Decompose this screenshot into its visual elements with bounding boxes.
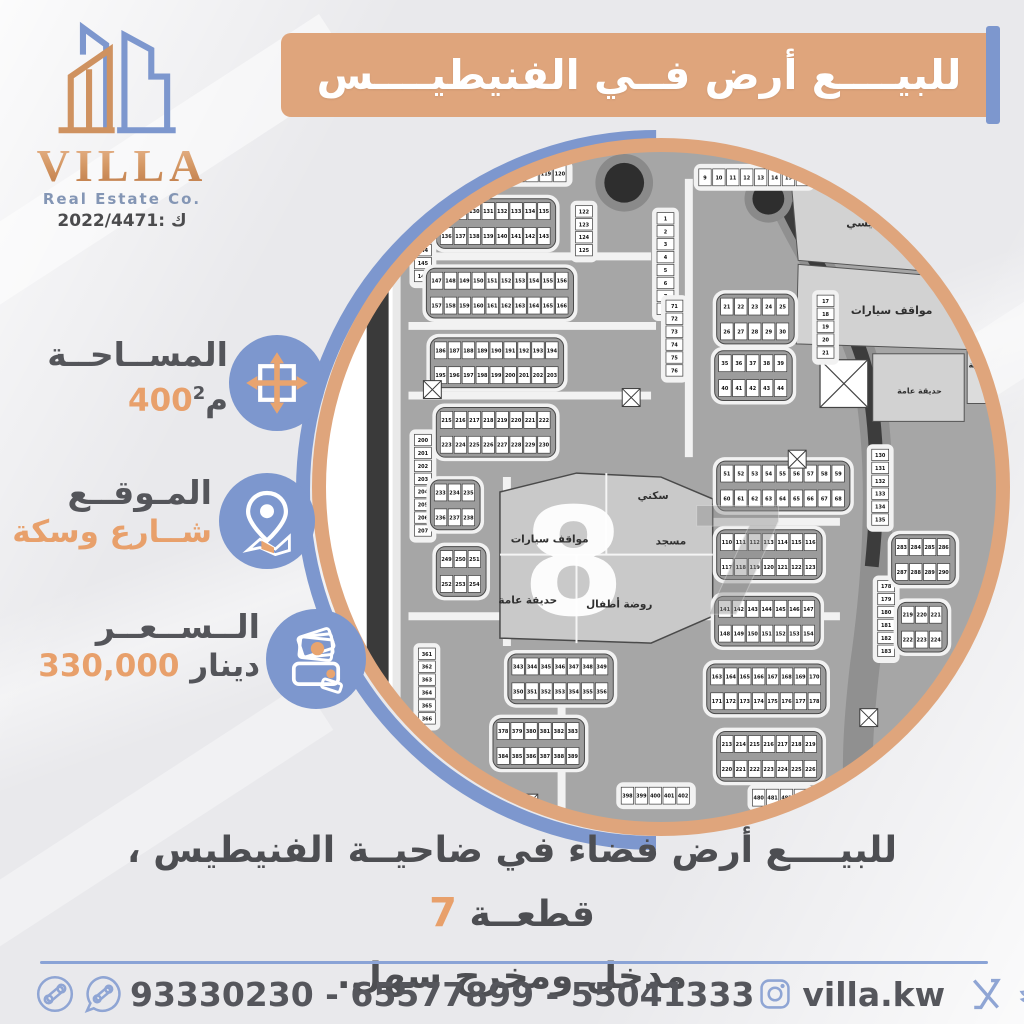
- svg-text:18: 18: [822, 312, 829, 318]
- svg-text:385: 385: [512, 754, 523, 760]
- svg-text:161: 161: [487, 304, 498, 310]
- svg-text:7: 7: [687, 477, 791, 650]
- svg-text:380: 380: [526, 729, 537, 735]
- svg-text:154: 154: [529, 279, 540, 285]
- svg-text:381: 381: [540, 729, 551, 735]
- svg-text:11: 11: [729, 175, 736, 181]
- svg-text:167: 167: [767, 674, 778, 680]
- svg-text:388: 388: [554, 754, 565, 760]
- svg-text:1: 1: [664, 216, 668, 222]
- svg-text:3: 3: [664, 242, 668, 248]
- subdivision-map: مسجد رئيسيمواقف سياراتحديقة عامةالابتدائ…: [323, 149, 999, 825]
- svg-text:481: 481: [767, 796, 778, 802]
- svg-text:57: 57: [807, 472, 814, 478]
- svg-text:224: 224: [777, 767, 788, 773]
- svg-text:200: 200: [418, 438, 429, 444]
- svg-text:354: 354: [569, 689, 580, 695]
- svg-text:285: 285: [924, 545, 935, 551]
- svg-text:402: 402: [678, 794, 689, 800]
- svg-text:229: 229: [525, 443, 536, 449]
- svg-text:120: 120: [555, 171, 566, 177]
- area-value: 400م2: [0, 374, 228, 420]
- svg-text:59: 59: [835, 472, 842, 478]
- price-value: 330,000 دينار: [30, 646, 260, 686]
- svg-text:124: 124: [579, 235, 590, 241]
- svg-text:42: 42: [749, 386, 756, 392]
- svg-text:71: 71: [671, 304, 678, 310]
- svg-text:56: 56: [793, 472, 800, 478]
- svg-text:149: 149: [459, 279, 470, 285]
- svg-text:201: 201: [519, 373, 530, 379]
- svg-text:145: 145: [418, 261, 429, 267]
- svg-text:220: 220: [917, 613, 928, 619]
- svg-text:195: 195: [435, 373, 446, 379]
- svg-text:218: 218: [791, 742, 802, 748]
- svg-text:223: 223: [763, 767, 774, 773]
- svg-text:173: 173: [740, 699, 751, 705]
- svg-text:19: 19: [822, 325, 829, 331]
- svg-text:75: 75: [671, 356, 678, 362]
- price-label: الــســعــر: [30, 608, 260, 646]
- svg-text:171: 171: [712, 699, 723, 705]
- svg-text:65: 65: [793, 496, 800, 502]
- svg-text:137: 137: [455, 234, 466, 240]
- svg-text:237: 237: [449, 515, 460, 521]
- svg-text:133: 133: [511, 209, 522, 215]
- location-icon: [219, 473, 315, 569]
- svg-text:216: 216: [455, 418, 466, 424]
- svg-text:221: 221: [525, 418, 536, 424]
- svg-text:191: 191: [505, 348, 516, 354]
- snapchat-icon: [1013, 973, 1024, 1015]
- svg-text:378: 378: [498, 729, 509, 735]
- svg-text:384: 384: [498, 754, 509, 760]
- svg-text:186: 186: [435, 348, 446, 354]
- svg-text:168: 168: [781, 674, 792, 680]
- svg-text:222: 222: [750, 767, 761, 773]
- svg-text:132: 132: [497, 209, 508, 215]
- svg-text:351: 351: [527, 689, 538, 695]
- svg-text:200: 200: [505, 373, 516, 379]
- instagram-icon: [754, 973, 796, 1015]
- svg-text:233: 233: [435, 490, 446, 496]
- svg-text:5: 5: [664, 268, 668, 274]
- svg-text:25: 25: [779, 305, 786, 311]
- svg-text:مواقف سيارات: مواقف سيارات: [851, 304, 933, 317]
- svg-text:153: 153: [789, 632, 800, 638]
- svg-text:152: 152: [501, 279, 512, 285]
- svg-text:164: 164: [726, 674, 737, 680]
- svg-text:142: 142: [525, 234, 536, 240]
- svg-text:123: 123: [805, 565, 816, 571]
- svg-text:345: 345: [541, 664, 552, 670]
- svg-text:29: 29: [765, 329, 772, 335]
- phone-icon: [34, 973, 76, 1015]
- description-line1: للبيــــع أرض فضاء في ضاحيــة الفنيطيس ،…: [127, 830, 897, 935]
- svg-text:286: 286: [938, 545, 949, 551]
- svg-text:221: 221: [930, 613, 941, 619]
- svg-text:225: 225: [791, 767, 802, 773]
- svg-text:132: 132: [875, 479, 886, 485]
- svg-text:44: 44: [777, 386, 784, 392]
- svg-text:134: 134: [525, 209, 536, 215]
- svg-text:39: 39: [777, 361, 784, 367]
- svg-text:176: 176: [781, 699, 792, 705]
- svg-text:162: 162: [501, 304, 512, 310]
- svg-text:26: 26: [723, 329, 730, 335]
- svg-text:مسجد: مسجد: [656, 536, 687, 548]
- x-icon: [965, 973, 1007, 1015]
- svg-text:353: 353: [555, 689, 566, 695]
- svg-text:201: 201: [418, 451, 429, 457]
- svg-text:187: 187: [449, 348, 460, 354]
- svg-text:352: 352: [541, 689, 552, 695]
- svg-text:27: 27: [737, 329, 744, 335]
- svg-text:225: 225: [469, 443, 480, 449]
- svg-text:283: 283: [897, 545, 908, 551]
- svg-text:4: 4: [664, 255, 668, 261]
- svg-text:21: 21: [723, 305, 730, 311]
- svg-text:175: 175: [767, 699, 778, 705]
- svg-text:362: 362: [422, 665, 433, 671]
- svg-text:221: 221: [736, 767, 747, 773]
- svg-text:361: 361: [422, 652, 433, 658]
- svg-text:146: 146: [789, 607, 800, 613]
- svg-text:364: 364: [422, 691, 433, 697]
- map-container: مسجد رئيسيمواقف سياراتحديقة عامةالابتدائ…: [323, 149, 999, 825]
- svg-text:163: 163: [515, 304, 526, 310]
- svg-text:284: 284: [911, 545, 922, 551]
- svg-text:72: 72: [671, 317, 678, 323]
- buildings-icon: [47, 18, 197, 140]
- svg-text:125: 125: [579, 248, 590, 254]
- svg-text:177: 177: [795, 699, 806, 705]
- svg-text:194: 194: [547, 348, 558, 354]
- svg-text:356: 356: [596, 689, 607, 695]
- svg-text:213: 213: [722, 742, 733, 748]
- svg-text:154: 154: [803, 632, 814, 638]
- svg-text:14: 14: [771, 175, 778, 181]
- svg-text:23: 23: [751, 305, 758, 311]
- svg-text:172: 172: [726, 699, 737, 705]
- svg-text:138: 138: [469, 234, 480, 240]
- svg-text:348: 348: [582, 664, 593, 670]
- svg-text:سكني: سكني: [637, 490, 668, 502]
- svg-text:238: 238: [463, 515, 474, 521]
- svg-text:252: 252: [441, 582, 452, 588]
- svg-text:17: 17: [822, 299, 829, 305]
- svg-text:218: 218: [483, 418, 494, 424]
- svg-text:66: 66: [807, 496, 814, 502]
- svg-text:223: 223: [441, 443, 452, 449]
- svg-text:288: 288: [911, 570, 922, 576]
- svg-text:290: 290: [938, 570, 949, 576]
- svg-text:174: 174: [753, 699, 764, 705]
- company-logo: VILLA Real Estate Co. 2022/4471: ك: [22, 18, 222, 231]
- svg-text:10: 10: [715, 175, 722, 181]
- svg-text:147: 147: [431, 279, 442, 285]
- svg-text:165: 165: [740, 674, 751, 680]
- plot-number: 7: [429, 890, 457, 936]
- svg-text:179: 179: [881, 597, 892, 603]
- svg-text:192: 192: [519, 348, 530, 354]
- svg-text:222: 222: [539, 418, 550, 424]
- svg-text:153: 153: [515, 279, 526, 285]
- svg-text:166: 166: [753, 674, 764, 680]
- svg-text:24: 24: [765, 305, 772, 311]
- svg-text:156: 156: [557, 279, 568, 285]
- area-icon: [229, 335, 325, 431]
- svg-text:249: 249: [441, 557, 452, 563]
- svg-text:67: 67: [821, 496, 828, 502]
- svg-text:135: 135: [875, 518, 886, 524]
- svg-text:202: 202: [418, 464, 429, 470]
- svg-text:159: 159: [459, 304, 470, 310]
- svg-text:130: 130: [875, 453, 886, 459]
- svg-text:143: 143: [539, 234, 550, 240]
- svg-text:13: 13: [757, 175, 764, 181]
- svg-text:219: 219: [497, 418, 508, 424]
- svg-text:219: 219: [903, 613, 914, 619]
- svg-text:196: 196: [449, 373, 460, 379]
- svg-text:122: 122: [791, 565, 802, 571]
- svg-text:480: 480: [753, 796, 764, 802]
- svg-text:8: 8: [522, 477, 626, 650]
- svg-text:347: 347: [569, 664, 580, 670]
- svg-text:399: 399: [636, 794, 647, 800]
- svg-text:9: 9: [703, 175, 707, 181]
- svg-text:251: 251: [469, 557, 480, 563]
- svg-text:230: 230: [539, 443, 550, 449]
- price-info: الــســعــر 330,000 دينار: [30, 608, 260, 686]
- svg-text:217: 217: [777, 742, 788, 748]
- svg-text:115: 115: [791, 540, 802, 546]
- svg-text:141: 141: [511, 234, 522, 240]
- svg-text:386: 386: [526, 754, 537, 760]
- svg-text:400: 400: [650, 794, 661, 800]
- svg-text:123: 123: [579, 222, 590, 228]
- svg-text:148: 148: [445, 279, 456, 285]
- svg-text:398: 398: [622, 794, 633, 800]
- svg-text:165: 165: [543, 304, 554, 310]
- svg-text:76: 76: [671, 368, 678, 374]
- svg-text:36: 36: [735, 361, 742, 367]
- svg-text:روضة أطفال: روضة أطفال: [586, 596, 652, 610]
- svg-text:30: 30: [779, 329, 786, 335]
- svg-text:349: 349: [596, 664, 607, 670]
- svg-text:74: 74: [671, 343, 678, 349]
- area-label: المســاحــة: [0, 336, 228, 374]
- svg-text:15: 15: [785, 175, 792, 181]
- svg-text:73: 73: [671, 330, 678, 336]
- svg-text:387: 387: [540, 754, 551, 760]
- svg-text:150: 150: [473, 279, 484, 285]
- svg-text:401: 401: [664, 794, 675, 800]
- svg-text:147: 147: [803, 607, 814, 613]
- location-info: المـوقــع شــارع وسكة: [0, 474, 212, 552]
- svg-text:122: 122: [579, 209, 590, 215]
- svg-text:226: 226: [483, 443, 494, 449]
- svg-text:226: 226: [805, 767, 816, 773]
- svg-text:182: 182: [881, 636, 892, 642]
- svg-text:197: 197: [463, 373, 474, 379]
- svg-text:214: 214: [736, 742, 747, 748]
- svg-text:21: 21: [822, 351, 829, 357]
- svg-text:344: 344: [527, 664, 538, 670]
- svg-text:382: 382: [554, 729, 565, 735]
- footer: 93330230 - 65577899 - 55041333 villa.kw …: [34, 970, 990, 1018]
- svg-text:287: 287: [897, 570, 908, 576]
- svg-text:157: 157: [431, 304, 442, 310]
- svg-text:178: 178: [881, 584, 892, 590]
- svg-text:383: 383: [568, 729, 579, 735]
- svg-text:119: 119: [541, 171, 552, 177]
- logo-name: VILLA: [22, 144, 222, 188]
- svg-text:20: 20: [822, 338, 829, 344]
- svg-text:217: 217: [469, 418, 480, 424]
- svg-text:178: 178: [809, 699, 820, 705]
- svg-text:144: 144: [418, 248, 429, 254]
- svg-text:220: 220: [722, 767, 733, 773]
- svg-text:389: 389: [568, 754, 579, 760]
- svg-text:350: 350: [513, 689, 524, 695]
- svg-text:379: 379: [512, 729, 523, 735]
- svg-text:222: 222: [903, 638, 914, 644]
- svg-text:136: 136: [441, 234, 452, 240]
- svg-text:228: 228: [511, 443, 522, 449]
- svg-text:190: 190: [491, 348, 502, 354]
- svg-text:235: 235: [463, 490, 474, 496]
- svg-text:198: 198: [477, 373, 488, 379]
- svg-text:188: 188: [463, 348, 474, 354]
- svg-text:202: 202: [533, 373, 544, 379]
- svg-text:203: 203: [418, 477, 429, 483]
- phone-numbers: 93330230 - 65577899 - 55041333: [130, 975, 754, 1014]
- svg-text:215: 215: [441, 418, 452, 424]
- svg-text:250: 250: [455, 557, 466, 563]
- svg-text:253: 253: [455, 582, 466, 588]
- logo-subtitle: Real Estate Co.: [22, 190, 222, 208]
- title-text: للبيــــع أرض فــي الفنيطيــــس: [317, 51, 962, 99]
- svg-text:58: 58: [821, 472, 828, 478]
- svg-text:158: 158: [445, 304, 456, 310]
- svg-text:130: 130: [469, 209, 480, 215]
- svg-text:169: 169: [795, 674, 806, 680]
- svg-text:43: 43: [763, 386, 770, 392]
- svg-text:366: 366: [422, 716, 433, 722]
- svg-text:116: 116: [805, 540, 816, 546]
- svg-text:38: 38: [763, 361, 770, 367]
- svg-text:216: 216: [763, 742, 774, 748]
- svg-text:166: 166: [557, 304, 568, 310]
- svg-text:40: 40: [721, 386, 728, 392]
- title-banner: للبيــــع أرض فــي الفنيطيــــس: [281, 33, 997, 117]
- svg-text:131: 131: [483, 209, 494, 215]
- instagram-handle: villa.kw: [802, 975, 945, 1014]
- svg-text:164: 164: [529, 304, 540, 310]
- svg-text:28: 28: [751, 329, 758, 335]
- svg-text:140: 140: [497, 234, 508, 240]
- svg-text:131: 131: [875, 466, 886, 472]
- svg-text:151: 151: [487, 279, 498, 285]
- svg-text:135: 135: [539, 209, 550, 215]
- svg-text:حديقة عامة: حديقة عامة: [498, 594, 557, 606]
- svg-text:181: 181: [881, 623, 892, 629]
- svg-text:220: 220: [511, 418, 522, 424]
- svg-text:254: 254: [469, 582, 480, 588]
- svg-text:22: 22: [737, 305, 744, 311]
- logo-license: 2022/4471: ك: [22, 211, 222, 231]
- svg-text:41: 41: [735, 386, 742, 392]
- svg-text:355: 355: [582, 689, 593, 695]
- svg-text:2: 2: [664, 229, 668, 235]
- svg-text:134: 134: [875, 505, 886, 511]
- svg-text:215: 215: [750, 742, 761, 748]
- svg-text:234: 234: [449, 490, 460, 496]
- svg-text:236: 236: [435, 515, 446, 521]
- whatsapp-icon: [82, 973, 124, 1015]
- area-info: المســاحــة 400م2: [0, 336, 228, 420]
- svg-text:170: 170: [809, 674, 820, 680]
- location-label: المـوقــع: [0, 474, 212, 512]
- svg-text:6: 6: [664, 281, 668, 287]
- svg-text:12: 12: [743, 175, 750, 181]
- phone-group: 93330230 - 65577899 - 55041333: [34, 973, 754, 1015]
- svg-text:346: 346: [555, 664, 566, 670]
- svg-text:227: 227: [497, 443, 508, 449]
- svg-text:37: 37: [749, 361, 756, 367]
- svg-text:68: 68: [835, 496, 842, 502]
- svg-text:203: 203: [547, 373, 558, 379]
- svg-text:223: 223: [917, 638, 928, 644]
- svg-text:363: 363: [422, 678, 433, 684]
- svg-text:207: 207: [418, 528, 429, 534]
- svg-text:224: 224: [455, 443, 466, 449]
- banner-accent-bar: [986, 26, 1000, 124]
- svg-text:35: 35: [721, 361, 728, 367]
- svg-text:163: 163: [712, 674, 723, 680]
- svg-text:حديقة عامة: حديقة عامة: [897, 387, 942, 396]
- svg-text:180: 180: [881, 610, 892, 616]
- svg-text:343: 343: [513, 664, 524, 670]
- svg-text:139: 139: [483, 234, 494, 240]
- social-group: villa.kw villa_kw: [754, 973, 1024, 1015]
- price-icon: [266, 609, 366, 709]
- svg-text:183: 183: [881, 649, 892, 655]
- svg-text:224: 224: [930, 638, 941, 644]
- svg-text:133: 133: [875, 492, 886, 498]
- svg-text:289: 289: [924, 570, 935, 576]
- svg-text:مواقف سيارات: مواقف سيارات: [511, 534, 589, 546]
- svg-text:193: 193: [533, 348, 544, 354]
- svg-text:199: 199: [491, 373, 502, 379]
- location-value: شــارع وسكة: [0, 512, 212, 552]
- svg-text:155: 155: [543, 279, 554, 285]
- svg-text:160: 160: [473, 304, 484, 310]
- svg-text:219: 219: [805, 742, 816, 748]
- svg-text:189: 189: [477, 348, 488, 354]
- footer-divider: [40, 961, 988, 964]
- svg-text:365: 365: [422, 703, 433, 709]
